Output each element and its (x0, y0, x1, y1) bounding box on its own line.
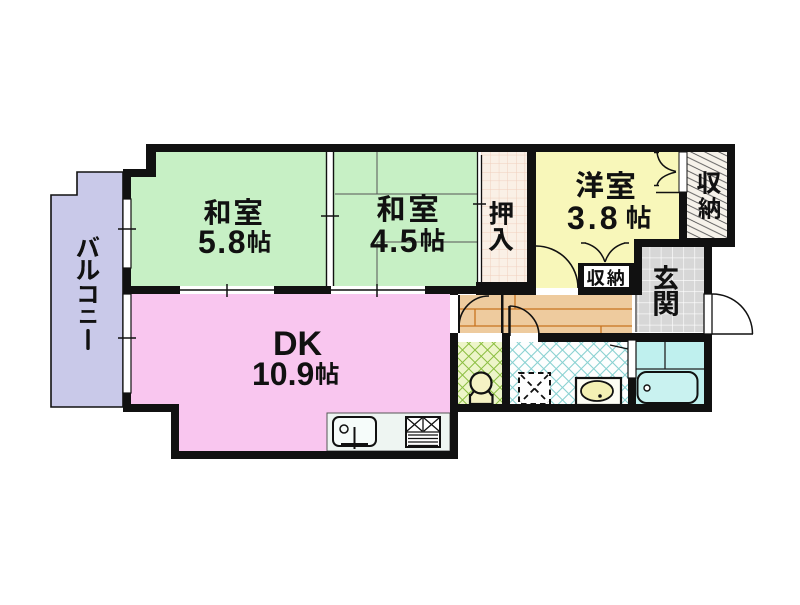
svg-text:10.9: 10.9 (252, 356, 314, 392)
svg-text:5.8: 5.8 (198, 224, 247, 260)
svg-text:3.8: 3.8 (567, 200, 620, 236)
svg-text:4.5: 4.5 (370, 223, 419, 259)
